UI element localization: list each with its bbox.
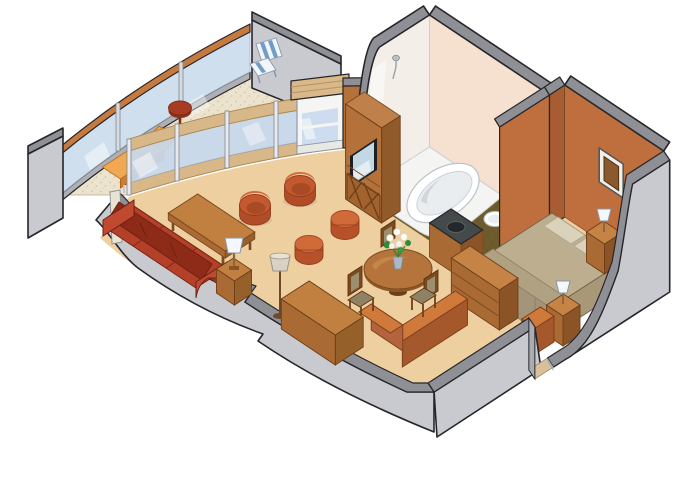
barrel-chair <box>283 172 317 207</box>
chair-seat <box>247 202 266 214</box>
floorplan-canvas: Cruise ship suite floor plan illustratio… <box>0 0 680 486</box>
glass-wall-post <box>175 124 179 181</box>
tv-cabinet <box>346 92 401 223</box>
flower <box>389 243 395 249</box>
flower <box>394 229 401 236</box>
vase <box>393 257 403 269</box>
ottoman <box>331 211 359 240</box>
privacy-partition-wall <box>28 128 63 238</box>
chair-seat <box>292 183 311 195</box>
tv-cabinet-side-se <box>382 116 401 223</box>
flower <box>401 234 408 241</box>
lamp-shade <box>225 238 243 253</box>
ottoman <box>295 236 323 265</box>
glass-wall-post <box>127 139 131 195</box>
table-top <box>169 101 192 115</box>
glass-wall-post <box>225 111 229 168</box>
flower <box>387 235 394 242</box>
lamp-shade <box>556 281 570 293</box>
barrel-chair <box>238 191 272 226</box>
leaf <box>398 247 404 253</box>
shower-head <box>393 55 400 61</box>
glass-wall-post <box>274 101 278 158</box>
lamp-base <box>229 266 239 270</box>
suite-floorplan-illustration: Cruise ship suite floor plan illustratio… <box>0 0 680 486</box>
balcony-door <box>297 91 343 154</box>
flower <box>396 241 402 247</box>
lamp-shade-top <box>270 253 290 259</box>
vanity-basin <box>447 222 465 233</box>
bedroom-jog-wall <box>550 85 565 227</box>
balustrade-post <box>116 103 120 151</box>
lamp-shade <box>597 209 611 221</box>
leaf <box>405 240 411 246</box>
entry-door-jamb <box>529 318 535 379</box>
